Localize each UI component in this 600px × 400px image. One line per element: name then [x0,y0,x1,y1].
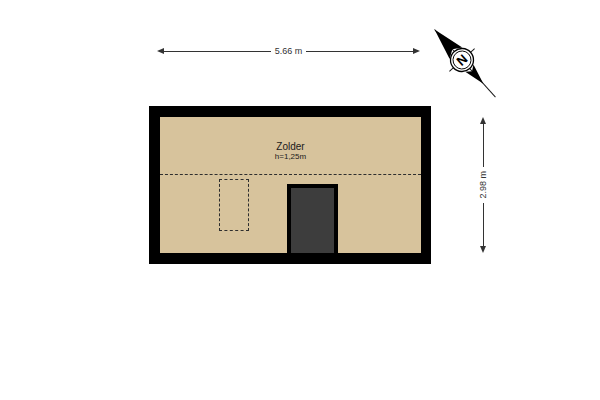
floor-plan-canvas: 5.66 m N Zolder h=1,25m 2.98 m [0,0,600,400]
width-dimension: 5.66 m [157,45,420,57]
height-dimension-label: 2.98 m [478,167,488,203]
dashed-outline-feature [219,179,249,231]
stairwell-opening [291,188,334,253]
stairwell [287,184,338,264]
width-dimension-label: 5.66 m [271,46,307,56]
dimension-line-segment [483,124,484,167]
compass-rose-icon: N [412,10,517,115]
arrow-left-icon [157,48,164,54]
dimension-line-segment [164,51,271,52]
headroom-boundary-dashed-line [160,174,421,175]
dimension-line-segment [483,203,484,246]
arrow-up-icon [480,117,486,124]
arrow-down-icon [480,246,486,253]
dimension-line-segment [306,51,413,52]
height-dimension: 2.98 m [477,117,489,253]
